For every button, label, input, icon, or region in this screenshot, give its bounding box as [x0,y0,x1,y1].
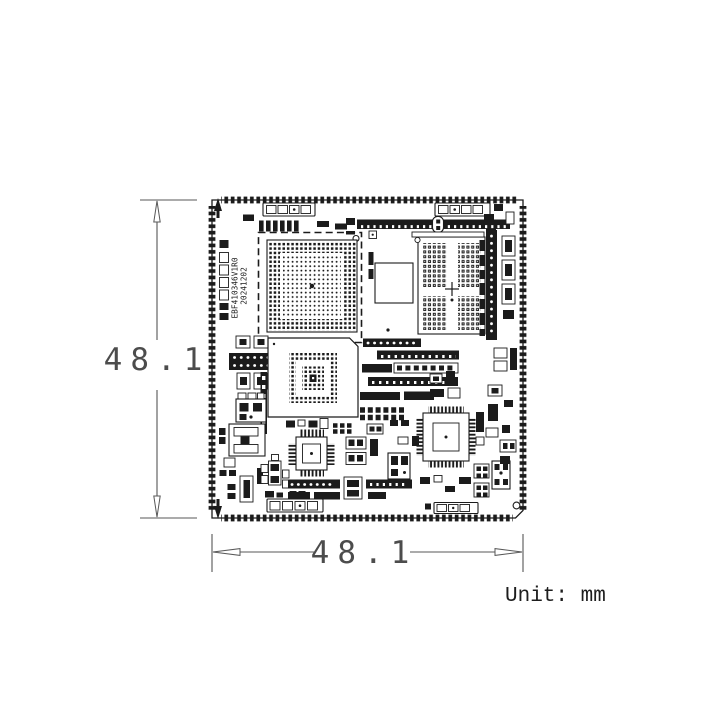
qfp-footprint-right [417,407,476,468]
pcb-drawing-page: EBF410346V1R0 20241202 [0,0,720,720]
pcb-drawing-canvas: EBF410346V1R0 20241202 [0,0,720,720]
board-part-number: EBF410346V1R0 [231,257,240,318]
dimension-width: 48.1 [212,534,523,572]
shield-outline [375,263,413,303]
height-dimension-label: 48.1 [104,342,211,378]
unit-note: Unit: mm [505,585,606,608]
dimension-height: 48.1 [104,200,211,518]
board-date-code: 20241202 [240,267,249,305]
ic-footprint-large [268,338,358,417]
corner-hole [513,502,520,509]
bga-footprint-ddr [415,237,485,334]
pcb-board: EBF410346V1R0 20241202 [209,197,527,522]
bga-footprint-main [259,233,362,343]
width-dimension-label: 48.1 [311,535,418,571]
